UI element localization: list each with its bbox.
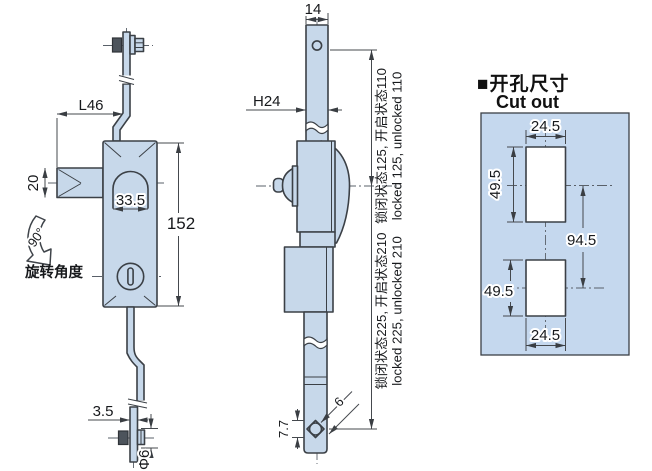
rod-top-section <box>306 25 328 142</box>
dim-h24: H24 <box>253 93 281 110</box>
rod-bottom-section <box>304 312 327 453</box>
dim-33-5: 33.5 <box>116 192 145 209</box>
technical-drawing-page: L46 20 33.5 <box>0 0 652 471</box>
dim-7-7-lines <box>292 409 304 449</box>
rotation-angle-label: 90° <box>25 225 49 250</box>
rod-lock-drawing: L46 20 33.5 <box>0 0 652 471</box>
cutout-hole-bottom <box>526 260 566 316</box>
lock-body <box>103 141 157 307</box>
dim-hole-spacing: 94.5 <box>567 232 596 249</box>
dim-l46: L46 <box>78 97 103 114</box>
handle-protrusion <box>57 168 103 198</box>
dim-top-width: 24.5 <box>531 118 560 135</box>
cutout-heading-en: Cut out <box>496 92 559 112</box>
dim-phi6: Φ6 <box>136 450 153 470</box>
cam-knob <box>274 166 298 206</box>
front-view: 14 H24 <box>246 1 405 464</box>
dim-20: 20 <box>25 175 42 192</box>
rotation-direction-label: 旋转角度 <box>24 263 83 281</box>
cutout-hole-top <box>526 147 566 222</box>
dim-7-7: 7.7 <box>276 420 291 438</box>
stroke-length-total-zh: 锁闭状态225, 开启状态210 <box>374 233 389 390</box>
dim-3-5: 3.5 <box>93 403 114 420</box>
dim-bottom-width: 24.5 <box>531 327 560 344</box>
dim-152: 152 <box>167 214 195 233</box>
dim-bottom-height: 49.5 <box>484 283 513 300</box>
stroke-length-upper-en: locked 125, unlocked 110 <box>390 72 405 221</box>
cutout-view: ■开孔尺寸 Cut out 24.5 49.5 94.5 <box>477 72 629 355</box>
dim-top-height: 49.5 <box>487 170 504 199</box>
left-side-view: L46 20 33.5 <box>24 28 195 470</box>
dim-6: 6 <box>331 394 347 410</box>
dim-14: 14 <box>305 1 322 18</box>
stroke-length-upper-zh: 锁闭状态125, 开启状态110 <box>374 68 389 224</box>
stroke-length-total-en: locked 225, unlocked 210 <box>390 236 405 386</box>
